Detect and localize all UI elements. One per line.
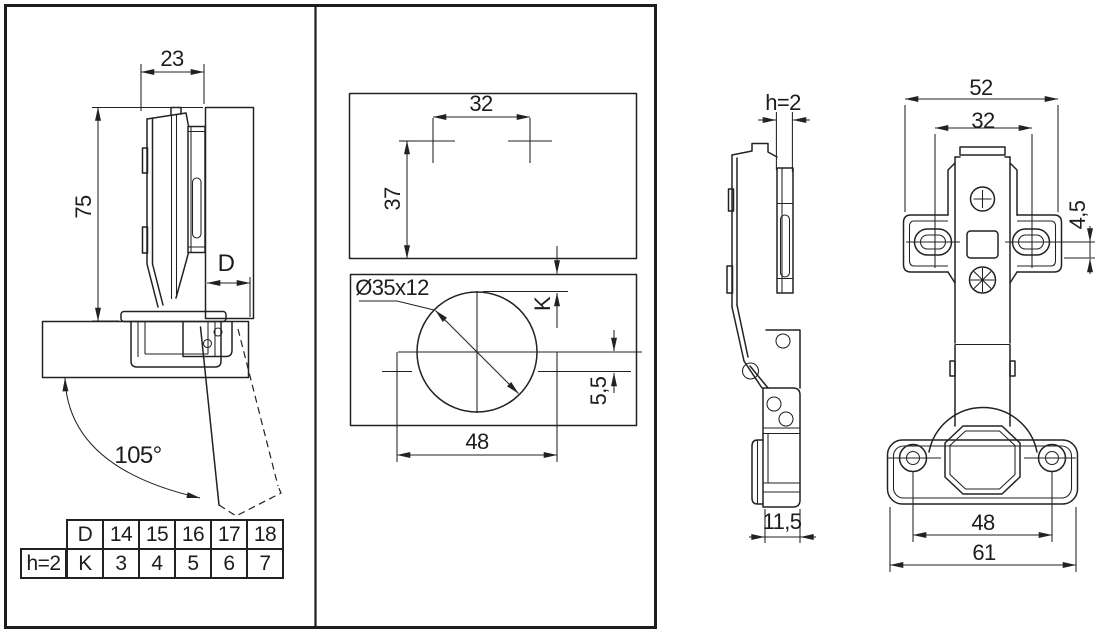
table-row-k: K 3 4 5 6 7 bbox=[67, 549, 283, 578]
view-side-profile bbox=[727, 112, 816, 543]
dim-height-label: 75 bbox=[73, 195, 95, 218]
dim-plate-offset-label: 37 bbox=[382, 187, 404, 210]
dim-arm-width-label: 23 bbox=[160, 48, 183, 70]
table-cell: 5 bbox=[175, 549, 211, 578]
dim-cup-depth-label: 11,5 bbox=[763, 511, 802, 533]
hinge-technical-drawing: 23 75 D 105° 32 37 Ø35x12 K 5,5 48 h=2 1… bbox=[0, 0, 1099, 633]
table-cell: 16 bbox=[175, 520, 211, 549]
dim-overlay-label: D bbox=[218, 252, 235, 276]
view-side-section bbox=[43, 64, 282, 516]
dim-cup-bore-label: Ø35x12 bbox=[355, 277, 428, 299]
dim-cup-distance-label: K bbox=[532, 297, 554, 311]
table-cell-k-label: K bbox=[67, 549, 103, 578]
table-row-d: D 14 15 16 17 18 bbox=[67, 520, 283, 549]
table-cell: 17 bbox=[211, 520, 247, 549]
table-cell: 15 bbox=[139, 520, 175, 549]
table-cell: 3 bbox=[103, 549, 139, 578]
dim-opening-angle-label: 105° bbox=[114, 444, 161, 468]
dk-value-table: D 14 15 16 17 18 K 3 4 5 6 7 bbox=[66, 519, 284, 579]
dim-plate-height-label: h=2 bbox=[765, 92, 801, 114]
dim-cup-screw-spacing-label: 48 bbox=[465, 431, 488, 453]
dim-slot-offset-label: 4,5 bbox=[1067, 201, 1089, 230]
table-cell: 4 bbox=[139, 549, 175, 578]
table-cell: 14 bbox=[103, 520, 139, 549]
view-front bbox=[888, 99, 1096, 572]
dim-flange-screw-spacing-label: 48 bbox=[971, 512, 994, 534]
table-cell: 7 bbox=[247, 549, 283, 578]
dim-plate-screw-spacing-label: 32 bbox=[469, 93, 492, 115]
table-cell-d-label: D bbox=[67, 520, 103, 549]
dim-front-screw-spacing-label: 32 bbox=[971, 110, 994, 132]
dim-flange-width-label: 61 bbox=[972, 542, 995, 564]
table-cell: 18 bbox=[247, 520, 283, 549]
dim-screw-offset-label: 5,5 bbox=[588, 377, 610, 406]
table-cell: 6 bbox=[211, 549, 247, 578]
table-corner-label: h=2 bbox=[20, 548, 67, 579]
dim-arm-length-label: 52 bbox=[969, 77, 992, 99]
